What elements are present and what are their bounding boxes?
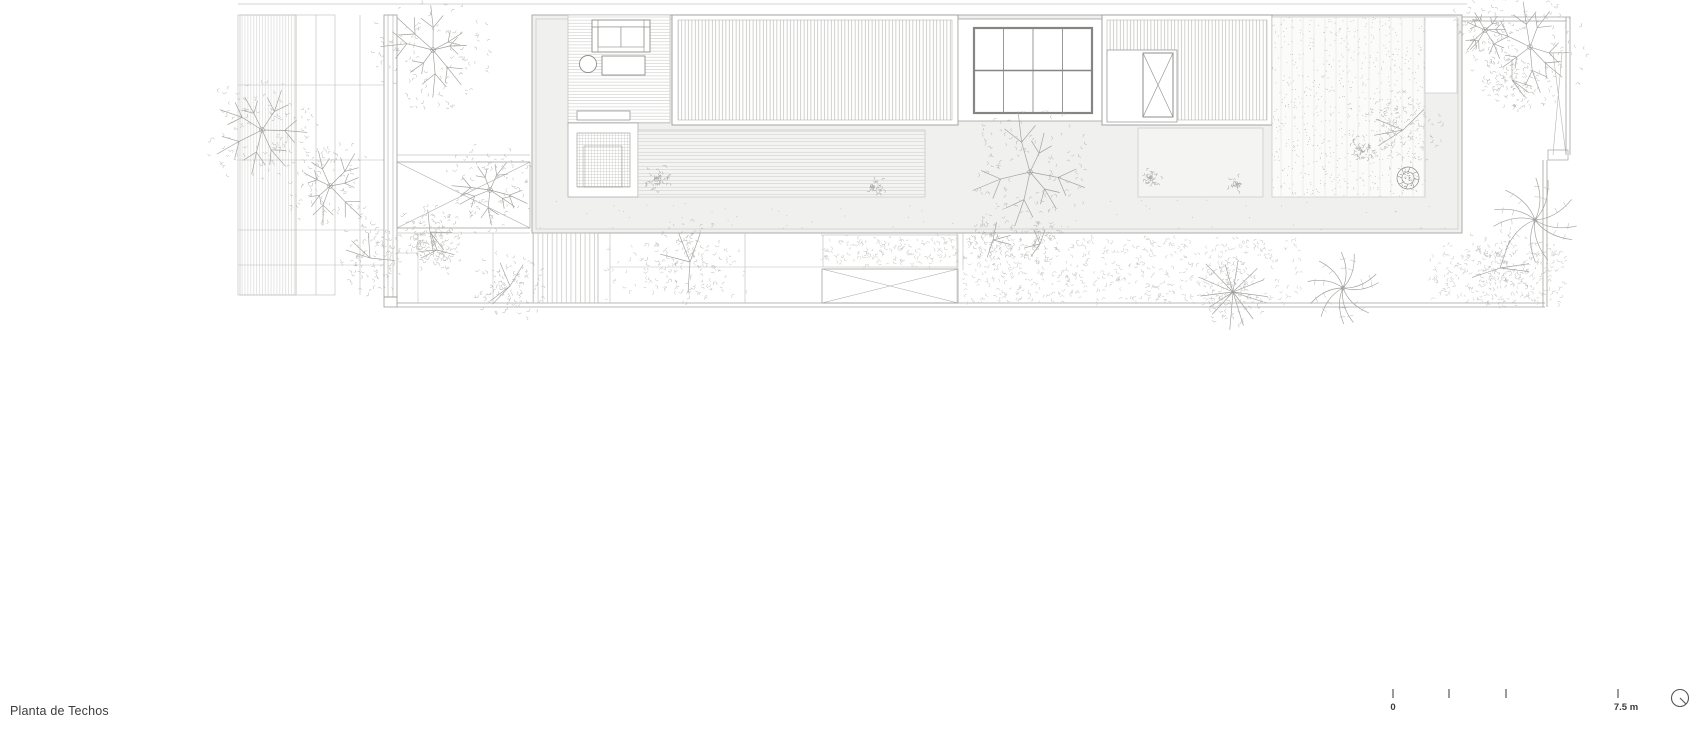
scale-bar bbox=[1393, 689, 1618, 698]
tree-branch bbox=[1453, 0, 1517, 64]
flower-bed bbox=[1138, 128, 1263, 197]
roof-plan-drawing bbox=[0, 0, 1700, 732]
tree-leafy bbox=[1483, 56, 1540, 112]
tree-leafy bbox=[411, 226, 461, 275]
scale-end-label: 7.5 m bbox=[1614, 702, 1638, 713]
stairs bbox=[533, 233, 598, 303]
tree-palm bbox=[1494, 178, 1577, 262]
coffee-table bbox=[602, 56, 645, 75]
tree-branch bbox=[1471, 0, 1589, 107]
equipment-unit bbox=[568, 123, 638, 197]
skylight-section bbox=[958, 19, 1102, 121]
meadow-texture bbox=[820, 233, 959, 270]
tree-branch bbox=[446, 144, 531, 234]
drawing-title: Planta de Techos bbox=[10, 704, 109, 718]
garden-band bbox=[533, 233, 963, 303]
meadow-texture bbox=[962, 234, 1303, 306]
skylight-grid bbox=[974, 28, 1092, 113]
scale-zero-label: 0 bbox=[1390, 702, 1395, 713]
scale-ticks bbox=[1393, 689, 1618, 698]
roof-terrace bbox=[568, 15, 670, 123]
boundary-wall bbox=[384, 15, 397, 307]
meadow-texture bbox=[1428, 243, 1567, 307]
crossed-planter bbox=[822, 269, 958, 303]
corrugated-roof-2 bbox=[1102, 15, 1272, 125]
stair-hatch bbox=[1143, 53, 1173, 117]
sofa bbox=[592, 20, 650, 52]
trellis-strip bbox=[397, 155, 530, 303]
meadow-texture bbox=[604, 239, 748, 300]
corrugated-roof-1 bbox=[672, 15, 958, 125]
tree-palm bbox=[1308, 252, 1379, 324]
round-chair bbox=[580, 56, 597, 73]
tree-leafy bbox=[1463, 227, 1542, 308]
left-garden-grid bbox=[238, 15, 384, 295]
bench bbox=[577, 111, 630, 120]
north-indicator-icon bbox=[1672, 690, 1689, 707]
roof-plan-sheet: Planta de Techos 0 7.5 m bbox=[0, 0, 1700, 732]
